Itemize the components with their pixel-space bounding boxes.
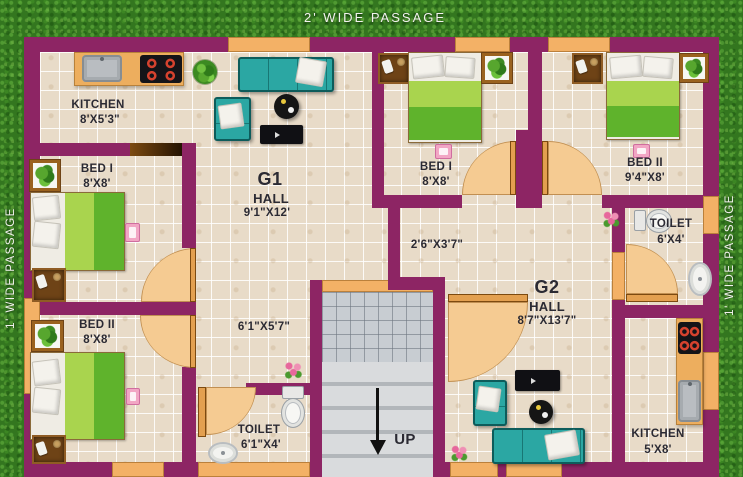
bed-blanket-dark: [409, 107, 481, 140]
nightstand-g2-bed2: [572, 53, 603, 84]
label-g1-bed2-name: BED II: [79, 319, 115, 333]
kitchen-stove-g2: [678, 322, 701, 354]
wall-g1-beds-east-b: [182, 302, 196, 315]
toilet-fixture-g1: [279, 386, 305, 428]
bed-blanket-light: [65, 193, 94, 270]
nightstand-g2-bed1: [378, 53, 410, 84]
wall-g2-kitchen-west: [612, 208, 625, 462]
tv-unit-g1: [260, 125, 303, 144]
label-g1-corridor-dims: 6'1"X5'7": [238, 321, 290, 335]
stairs-arrow: [376, 388, 379, 442]
label-g2-unit: G2: [534, 277, 559, 299]
plant-frame-g1-bed1: [30, 160, 60, 191]
window-top-3: [548, 37, 610, 52]
armchair-pillow-g1: [217, 102, 244, 129]
switch-g2-bed2: [633, 144, 650, 158]
door-leaf-g2-hall: [448, 294, 528, 302]
bed-blanket-dark: [607, 106, 679, 137]
door-leaf-g1-bed2: [190, 315, 196, 368]
flowers-g2-hall: [450, 444, 468, 462]
label-stairs-up: UP: [394, 431, 415, 449]
bed-blanket-light: [607, 81, 679, 106]
pillow: [444, 56, 475, 79]
label-g1-toilet-dims: 6'1"X4': [241, 439, 281, 453]
sofa-pillow-g1: [295, 57, 327, 87]
label-g1-toilet-name: TOILET: [238, 424, 280, 438]
label-g2-bed2-dims: 9'4"X8': [625, 172, 665, 186]
window-bottom-1: [112, 462, 164, 477]
label-g1-bed2-dims: 8'X8': [83, 334, 110, 348]
pillow: [411, 54, 445, 79]
sofa-pillow-g2: [544, 429, 580, 460]
window-bottom-4: [506, 462, 562, 477]
kitchen-sink-g2: [678, 380, 701, 422]
pillow: [32, 195, 61, 222]
wall-g2-bed1-south: [372, 195, 462, 208]
pillow: [32, 221, 62, 250]
bed-blanket-dark: [94, 353, 124, 439]
wall-g2-bed-divider: [528, 52, 542, 208]
switch-g2-bed1: [435, 144, 452, 159]
wall-g2-kitchen-north: [625, 305, 703, 318]
label-g1-unit: G1: [257, 169, 282, 191]
label-g2-kitchen-name: KITCHEN: [631, 428, 684, 442]
wall-stairs-right: [433, 277, 445, 477]
label-passage-right: 1' WIDE PASSAGE: [724, 194, 736, 316]
wall-g1-bed-divider: [24, 302, 182, 315]
door-leaf-g2-toilet: [626, 294, 678, 302]
label-g2-bed1-name: BED I: [420, 161, 452, 175]
window-top-1: [228, 37, 310, 52]
stairs-arrow-head: [370, 440, 386, 455]
toilet-bowl: [281, 398, 305, 428]
nightstand-g1-bed2: [32, 435, 66, 464]
window-right-2: [703, 352, 719, 410]
wall-g2-corridor-west: [388, 208, 400, 290]
label-g1-bed1-name: BED I: [81, 163, 113, 177]
door-leaf-g2-bed1: [510, 141, 516, 195]
label-g2-toilet-name: TOILET: [650, 218, 692, 232]
plant-frame-g1-bed2: [32, 321, 63, 351]
bed-blanket-dark: [94, 193, 124, 270]
pillow: [32, 358, 62, 386]
switch-g1-bed1: [125, 223, 140, 242]
kitchen-sink-g1: [82, 55, 122, 82]
label-g1-kitchen-dims: 8'X5'3": [80, 114, 120, 128]
bed-blanket-light: [409, 81, 481, 107]
label-g1-bed1-dims: 8'X8': [83, 178, 110, 192]
wall-g2-bed2-south: [602, 195, 703, 208]
label-g2-hall-dims: 8'7"X13'7": [517, 315, 576, 329]
flowers-g1-corridor: [283, 360, 303, 380]
toilet-tank: [634, 210, 646, 231]
door-leaf-g1-toilet: [198, 387, 206, 437]
pillow: [609, 55, 643, 80]
floor-plan: KITCHEN 8'X5'3" BED I 8'X8' G1 HALL 9'1"…: [0, 0, 743, 477]
nightstand-g1-bed1: [32, 268, 66, 302]
wall-kitchen-south: [24, 143, 130, 156]
g2-lobby-opening: [612, 252, 625, 300]
wall-g2-bed-door-stub: [516, 130, 528, 208]
label-g2-kitchen-dims: 5'X8': [644, 444, 671, 458]
pillow: [642, 56, 674, 80]
label-passage-top: 2' WIDE PASSAGE: [304, 10, 446, 25]
label-g2-bed1-dims: 8'X8': [422, 176, 449, 190]
stairs-landing: [322, 292, 433, 362]
outer-wall-right: [703, 37, 719, 477]
door-leaf-g1-bed1: [190, 248, 196, 302]
window-bottom-2: [198, 462, 310, 477]
wash-basin-g2: [688, 262, 712, 296]
label-g2-toilet-dims: 6'X4': [657, 234, 684, 248]
label-g1-hall-dims: 9'1"X12': [244, 207, 291, 221]
label-g1-kitchen-name: KITCHEN: [71, 99, 124, 113]
label-g2-hall-name: HALL: [529, 299, 565, 315]
wall-g2-corridor-south: [400, 277, 445, 290]
switch-g1-bed2: [126, 388, 140, 405]
wall-stairs-left: [310, 280, 322, 477]
plant-frame-g2-bed1: [482, 53, 512, 83]
pillow: [32, 387, 62, 416]
wall-g1-beds-east-a: [182, 143, 196, 248]
label-g2-corridor-dims: 2'6"X3'7": [411, 239, 463, 253]
coffee-table-g1: [274, 94, 299, 119]
window-bottom-3: [450, 462, 498, 477]
wash-basin-g1: [208, 442, 238, 464]
label-passage-left: 1' WIDE PASSAGE: [5, 207, 17, 329]
label-g1-hall-name: HALL: [253, 191, 289, 207]
window-top-2: [455, 37, 510, 52]
label-g2-bed2-name: BED II: [627, 157, 663, 171]
kitchen-door-sill: [130, 143, 182, 156]
flowers-g2-toilet: [602, 210, 620, 228]
bed-blanket-light: [65, 353, 94, 439]
plant-frame-g2-bed2: [680, 54, 708, 82]
armchair-pillow-g2: [475, 386, 501, 413]
plant-pot-g1-hall: [193, 60, 217, 84]
coffee-table-g2: [529, 400, 553, 424]
outer-wall-top: [24, 37, 719, 52]
window-right-1: [703, 196, 719, 234]
kitchen-stove-g1: [140, 55, 182, 83]
tv-unit-g2: [515, 370, 560, 391]
wall-g1-beds-east-c: [182, 367, 196, 462]
